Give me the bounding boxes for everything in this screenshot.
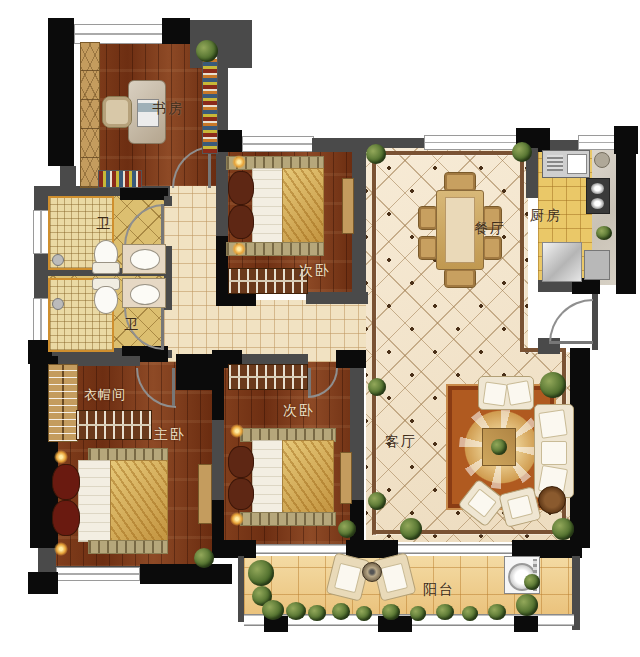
wardrobe	[228, 268, 308, 294]
refrigerator	[542, 242, 582, 282]
hallway-floor-vertical	[164, 186, 218, 362]
nightstand-lamp	[54, 542, 68, 556]
bed-duvet	[282, 168, 324, 244]
kitchen-cabinet	[584, 250, 610, 280]
plant	[332, 603, 350, 620]
bookshelf	[98, 170, 142, 188]
shower-knob	[52, 298, 64, 310]
wall	[48, 18, 74, 44]
wall	[352, 152, 366, 304]
side-table	[538, 486, 566, 514]
wall	[212, 420, 224, 500]
plant	[262, 600, 284, 620]
study-wardrobe	[80, 42, 100, 188]
table-plant	[491, 439, 507, 455]
drainboard	[547, 155, 563, 171]
plant	[488, 604, 506, 620]
burner	[591, 183, 604, 194]
room-label-bath-top: 卫	[96, 215, 110, 233]
chair-cushion	[334, 563, 362, 594]
loveseat	[478, 376, 534, 410]
wall	[312, 138, 370, 152]
sofa-cushion	[483, 382, 508, 407]
wall	[336, 350, 366, 368]
coffee-table	[482, 428, 516, 466]
dining-window	[424, 135, 518, 150]
plant	[524, 574, 540, 590]
floor-trim	[520, 151, 524, 351]
entry-door-arc	[549, 299, 593, 343]
bathroom-bottom-window	[33, 298, 49, 344]
wall	[614, 126, 638, 154]
bedroom2-bottom-door	[308, 368, 311, 396]
balcony-sliding-door	[398, 544, 512, 554]
pillow	[52, 500, 80, 536]
room-label-study: 书房	[152, 100, 184, 118]
bed-sheet	[252, 440, 284, 514]
wall	[306, 292, 368, 304]
master-door	[172, 368, 175, 406]
plant	[400, 518, 422, 540]
nightstand-lamp	[232, 242, 246, 256]
bed-duvet	[282, 440, 334, 514]
dresser	[340, 452, 352, 504]
wall	[212, 540, 256, 558]
plant	[308, 605, 326, 621]
plant	[516, 594, 538, 616]
wall	[616, 154, 636, 294]
room-label-closet: 衣帽间	[84, 386, 126, 404]
bed-sheet	[252, 168, 284, 244]
wall	[164, 196, 172, 206]
entry-door	[549, 341, 593, 344]
master-window	[56, 567, 140, 581]
plant	[286, 602, 306, 620]
balcony-table	[362, 562, 382, 582]
plant	[356, 606, 372, 621]
plant	[436, 604, 454, 620]
plant	[368, 492, 386, 510]
chair-cushion	[467, 488, 497, 517]
bathroom-bottom-door	[161, 308, 164, 350]
toilet-tank	[92, 262, 120, 274]
nightstand-lamp	[230, 512, 244, 526]
room-label-dining: 餐厅	[474, 220, 506, 238]
bed-canopy	[240, 512, 336, 526]
sofa-cushion	[506, 380, 531, 405]
dresser	[198, 464, 212, 524]
chair-cushion	[507, 495, 533, 520]
bedroom2-top-window	[242, 136, 314, 152]
room-label-bedroom2-bottom: 次卧	[283, 402, 315, 420]
floor-plan: 书房 卫 卫 次卧 餐厅 厨房 衣帽间 主卧 次卧 客厅 阳台	[0, 0, 640, 657]
pillow	[228, 478, 254, 510]
kitchen-sink-unit	[542, 150, 590, 178]
sink-counter	[122, 278, 166, 308]
study-window	[74, 24, 164, 44]
plant	[410, 606, 426, 621]
pillow	[228, 205, 254, 239]
plant	[366, 144, 386, 164]
wall	[140, 564, 232, 584]
wall	[120, 188, 168, 200]
dining-chair	[418, 236, 438, 260]
stove	[586, 178, 610, 214]
sink-basin	[130, 249, 160, 270]
bed-sheet	[78, 460, 112, 542]
desk-chair	[102, 96, 132, 128]
plant	[512, 142, 532, 162]
sink-basin	[130, 284, 160, 305]
dining-chair	[482, 236, 502, 260]
wall	[48, 44, 74, 166]
plant	[462, 606, 478, 621]
pillow	[228, 446, 254, 478]
floor-trim	[372, 151, 524, 155]
wall	[28, 572, 58, 594]
room-label-balcony: 阳台	[423, 581, 455, 599]
plant	[338, 520, 356, 538]
railing-post	[514, 616, 538, 632]
wall	[350, 368, 364, 500]
dining-chair	[444, 268, 476, 288]
plant	[248, 560, 274, 586]
plant	[552, 518, 574, 540]
plant	[368, 378, 386, 396]
dining-chair	[444, 172, 476, 192]
room-label-bath-bottom: 卫	[124, 316, 138, 334]
toilet	[94, 286, 118, 314]
balcony-sliding-door	[256, 544, 346, 554]
sink-basin	[567, 154, 587, 174]
table-runner	[445, 197, 475, 263]
bathroom-top-window	[33, 210, 49, 254]
dresser	[342, 178, 354, 234]
dining-chair	[418, 206, 438, 230]
plant	[382, 604, 400, 620]
room-label-kitchen: 厨房	[530, 207, 562, 225]
closet-rack	[48, 364, 78, 442]
closet-rack	[76, 410, 152, 440]
bathroom-top-door	[161, 204, 164, 246]
pillow	[52, 464, 80, 500]
burner	[591, 198, 604, 209]
nightstand-lamp	[230, 424, 244, 438]
wardrobe	[228, 364, 308, 390]
plant	[194, 548, 214, 568]
shower-knob	[52, 254, 64, 266]
floor-trim	[372, 151, 376, 535]
wall	[176, 354, 212, 390]
plant	[540, 372, 566, 398]
sofa-cushion	[538, 409, 567, 438]
kitchen-window	[578, 135, 616, 150]
sofa-cushion	[541, 441, 567, 465]
nightstand-lamp	[54, 450, 68, 464]
room-label-living: 客厅	[385, 433, 417, 451]
pillow	[228, 171, 254, 205]
sink-counter	[122, 244, 166, 274]
room-label-master: 主卧	[154, 426, 186, 444]
bed-duvet	[110, 460, 168, 542]
chair-cushion	[380, 563, 408, 594]
room-label-bedroom2-top: 次卧	[299, 262, 331, 280]
pot	[594, 152, 610, 168]
bed-canopy	[88, 540, 168, 554]
balcony-rail-left	[238, 556, 244, 622]
plant	[196, 40, 218, 62]
wall	[162, 18, 190, 44]
sofa	[534, 404, 574, 498]
nightstand-lamp	[232, 155, 246, 169]
bookshelf	[202, 56, 218, 154]
plant	[596, 226, 612, 240]
